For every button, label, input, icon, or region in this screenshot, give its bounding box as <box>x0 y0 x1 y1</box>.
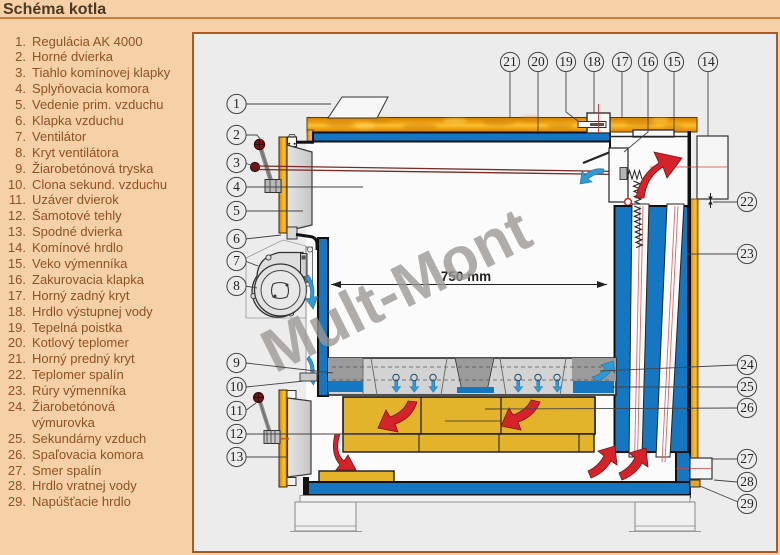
svg-text:21: 21 <box>503 54 517 69</box>
svg-text:15: 15 <box>667 54 681 69</box>
svg-text:2: 2 <box>233 127 240 142</box>
svg-text:23: 23 <box>740 246 754 261</box>
svg-text:28: 28 <box>740 474 754 489</box>
svg-text:24: 24 <box>740 357 754 372</box>
svg-text:29: 29 <box>740 496 754 511</box>
svg-text:11: 11 <box>230 403 243 418</box>
svg-text:14: 14 <box>701 54 715 69</box>
svg-text:3: 3 <box>233 155 240 170</box>
svg-text:10: 10 <box>230 379 244 394</box>
svg-text:26: 26 <box>740 400 754 415</box>
svg-text:6: 6 <box>233 231 240 246</box>
svg-text:1: 1 <box>233 96 240 111</box>
svg-text:7: 7 <box>233 253 240 268</box>
svg-text:8: 8 <box>233 278 240 293</box>
svg-text:5: 5 <box>233 203 240 218</box>
svg-text:20: 20 <box>531 54 545 69</box>
svg-text:12: 12 <box>230 426 244 441</box>
svg-text:25: 25 <box>740 379 754 394</box>
svg-text:4: 4 <box>233 179 240 194</box>
svg-text:22: 22 <box>740 194 754 209</box>
svg-text:17: 17 <box>615 54 629 69</box>
svg-text:18: 18 <box>587 54 601 69</box>
svg-text:27: 27 <box>740 451 754 466</box>
svg-text:19: 19 <box>559 54 573 69</box>
svg-text:9: 9 <box>233 355 240 370</box>
svg-text:16: 16 <box>641 54 655 69</box>
svg-text:13: 13 <box>230 449 244 464</box>
